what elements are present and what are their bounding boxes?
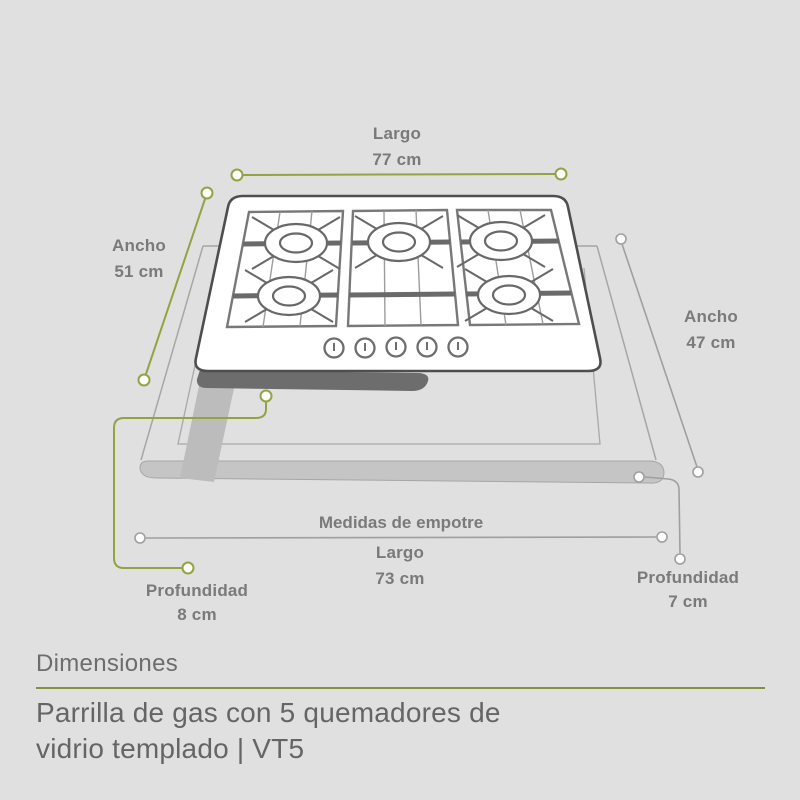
dim-ancho-left-label: Ancho bbox=[112, 233, 166, 259]
dim-ancho-right-value: 47 cm bbox=[684, 330, 738, 356]
callout-profundidad-7 bbox=[634, 472, 685, 564]
dim-profundidad-left: Profundidad 8 cm bbox=[146, 579, 248, 627]
counter-front-edge bbox=[140, 461, 664, 483]
product-name-line1: Parrilla de gas con 5 quemadores de bbox=[36, 697, 501, 729]
dim-ancho-left-value: 51 cm bbox=[112, 259, 166, 285]
burner-icon bbox=[245, 270, 333, 322]
burner-icon bbox=[465, 269, 553, 321]
dim-largo-top-value: 77 cm bbox=[372, 147, 421, 173]
dimension-diagram: Largo 77 cm Ancho 51 cm Ancho 47 cm Medi… bbox=[0, 0, 800, 800]
cooktop-illustration bbox=[0, 0, 800, 800]
dim-ancho-right: Ancho 47 cm bbox=[684, 304, 738, 356]
empotre-header: Medidas de empotre bbox=[319, 513, 483, 533]
dim-ancho-left: Ancho 51 cm bbox=[112, 233, 166, 285]
dim-largo-empotre-label: Largo bbox=[375, 540, 424, 566]
dim-profundidad-left-label: Profundidad bbox=[146, 579, 248, 603]
dim-largo-empotre-value: 73 cm bbox=[375, 566, 424, 592]
product-name-line2: vidrio templado | VT5 bbox=[36, 733, 304, 765]
dim-profundidad-right: Profundidad 7 cm bbox=[637, 566, 739, 614]
section-title: Dimensiones bbox=[36, 650, 178, 678]
knob-icon bbox=[325, 339, 344, 358]
cooktop-body bbox=[197, 370, 428, 391]
knob-icon bbox=[356, 339, 375, 358]
dim-ancho-right-label: Ancho bbox=[684, 304, 738, 330]
dim-profundidad-right-value: 7 cm bbox=[637, 590, 739, 614]
callout-profundidad-8 bbox=[114, 391, 272, 574]
dim-profundidad-right-label: Profundidad bbox=[637, 566, 739, 590]
dim-largo-top-label: Largo bbox=[372, 121, 421, 147]
burner-icon bbox=[252, 217, 340, 269]
burner-icon bbox=[355, 216, 443, 268]
footer-divider bbox=[36, 687, 765, 689]
knob-icon bbox=[387, 338, 406, 357]
burner-icon bbox=[457, 215, 545, 267]
knob-icon bbox=[418, 338, 437, 357]
dim-profundidad-left-value: 8 cm bbox=[146, 603, 248, 627]
dim-largo-empotre: Largo 73 cm bbox=[375, 540, 424, 592]
knob-icon bbox=[449, 338, 468, 357]
dim-largo-top: Largo 77 cm bbox=[372, 121, 421, 173]
